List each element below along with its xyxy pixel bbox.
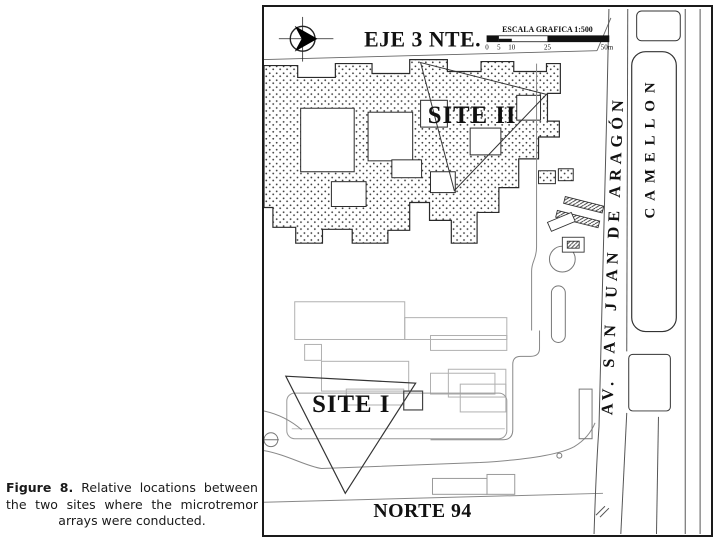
site1-array: SITE I [286,376,423,493]
median-pill [551,286,565,343]
building-complex [264,60,573,244]
figure-caption-label: Figure 8. [6,480,73,495]
street-furniture [264,246,609,517]
site1-station-square [404,391,423,410]
scale-tick-label: 5 [497,44,501,52]
figure-caption: Figure 8. Relative locations between the… [6,480,258,530]
site2-label: SITE II [428,102,517,129]
street-bottom-label: NORTE 94 [373,500,472,522]
street-top-label: EJE 3 NTE. [364,28,481,52]
camellon-label: CAMELLON [643,75,659,218]
avenue-label: AV. SAN JUAN DE ARAGÓN [597,95,627,416]
camellon-median-lower [629,354,671,411]
scale-tick-label: 10 [508,44,515,52]
break-mark-icon [596,506,609,517]
scale-title: ESCALA GRAFICA 1:500 [502,25,593,34]
site-map: SITE II SITE I EJE 3 NTE. NORTE 94 AV. S… [264,7,711,535]
scale-bar: ESCALA GRAFICA 1:500 0 5 10 25 50m [485,25,613,52]
avenue-top-block [637,11,681,41]
detached-buildings [539,169,574,184]
map-figure-panel: SITE II SITE I EJE 3 NTE. NORTE 94 AV. S… [262,5,713,537]
scale-tick-label: 50m [601,44,614,52]
bridge-structure [547,197,603,253]
scale-tick-label: 0 [485,44,489,52]
site1-label: SITE I [312,391,390,418]
north-arrow-icon [279,17,334,62]
scale-tick-label: 25 [544,44,551,52]
